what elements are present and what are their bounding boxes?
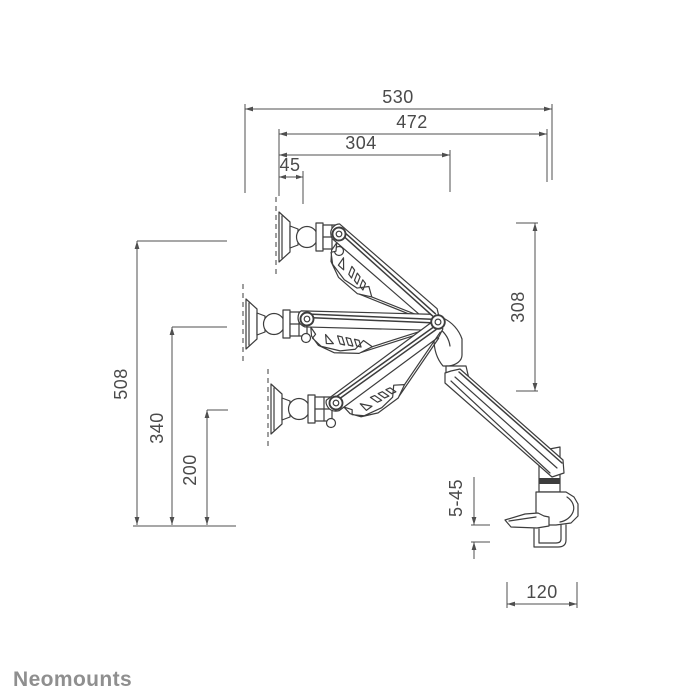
dim-label-desk-thickness: 5-45 (446, 479, 466, 517)
dim-clamp-base-depth: 120 (507, 582, 577, 608)
dim-label-max-height: 508 (111, 368, 131, 400)
technical-drawing-page: 530 472 304 45 508 340 200 308 (0, 0, 700, 700)
brand-logo: Neomounts (13, 668, 132, 691)
dim-label-mid-height: 340 (147, 412, 167, 444)
forearm-link (445, 369, 564, 477)
display-mount-head-bottom (268, 369, 336, 449)
dim-upper-arm-reach: 304 (279, 133, 450, 192)
desk-clamp (505, 492, 578, 547)
monitor-arm-dimension-drawing: 530 472 304 45 508 340 200 308 (0, 0, 700, 700)
dim-label-min-height: 200 (180, 454, 200, 486)
dim-label-pivot-offset: 45 (279, 155, 300, 175)
dim-mid-height: 340 (147, 327, 227, 525)
dim-head-pivot-offset: 45 (279, 155, 303, 204)
dim-arm-horizontal-reach: 472 (279, 112, 547, 196)
dim-desk-thickness-range: 5-45 (446, 477, 490, 559)
dim-label-upper-arm: 304 (345, 133, 377, 153)
dim-label-arm-reach: 472 (396, 112, 428, 132)
dim-vertical-adjustment-range: 308 (508, 223, 538, 391)
dim-label-clamp-depth: 120 (526, 582, 558, 602)
dim-label-vertical-range: 308 (508, 291, 528, 323)
elbow-joint (431, 315, 445, 329)
monitor-arm-assembly (243, 197, 578, 547)
dim-max-height: 508 (111, 241, 227, 525)
dim-label-full-reach: 530 (382, 87, 414, 107)
dim-min-height: 200 (180, 410, 228, 525)
